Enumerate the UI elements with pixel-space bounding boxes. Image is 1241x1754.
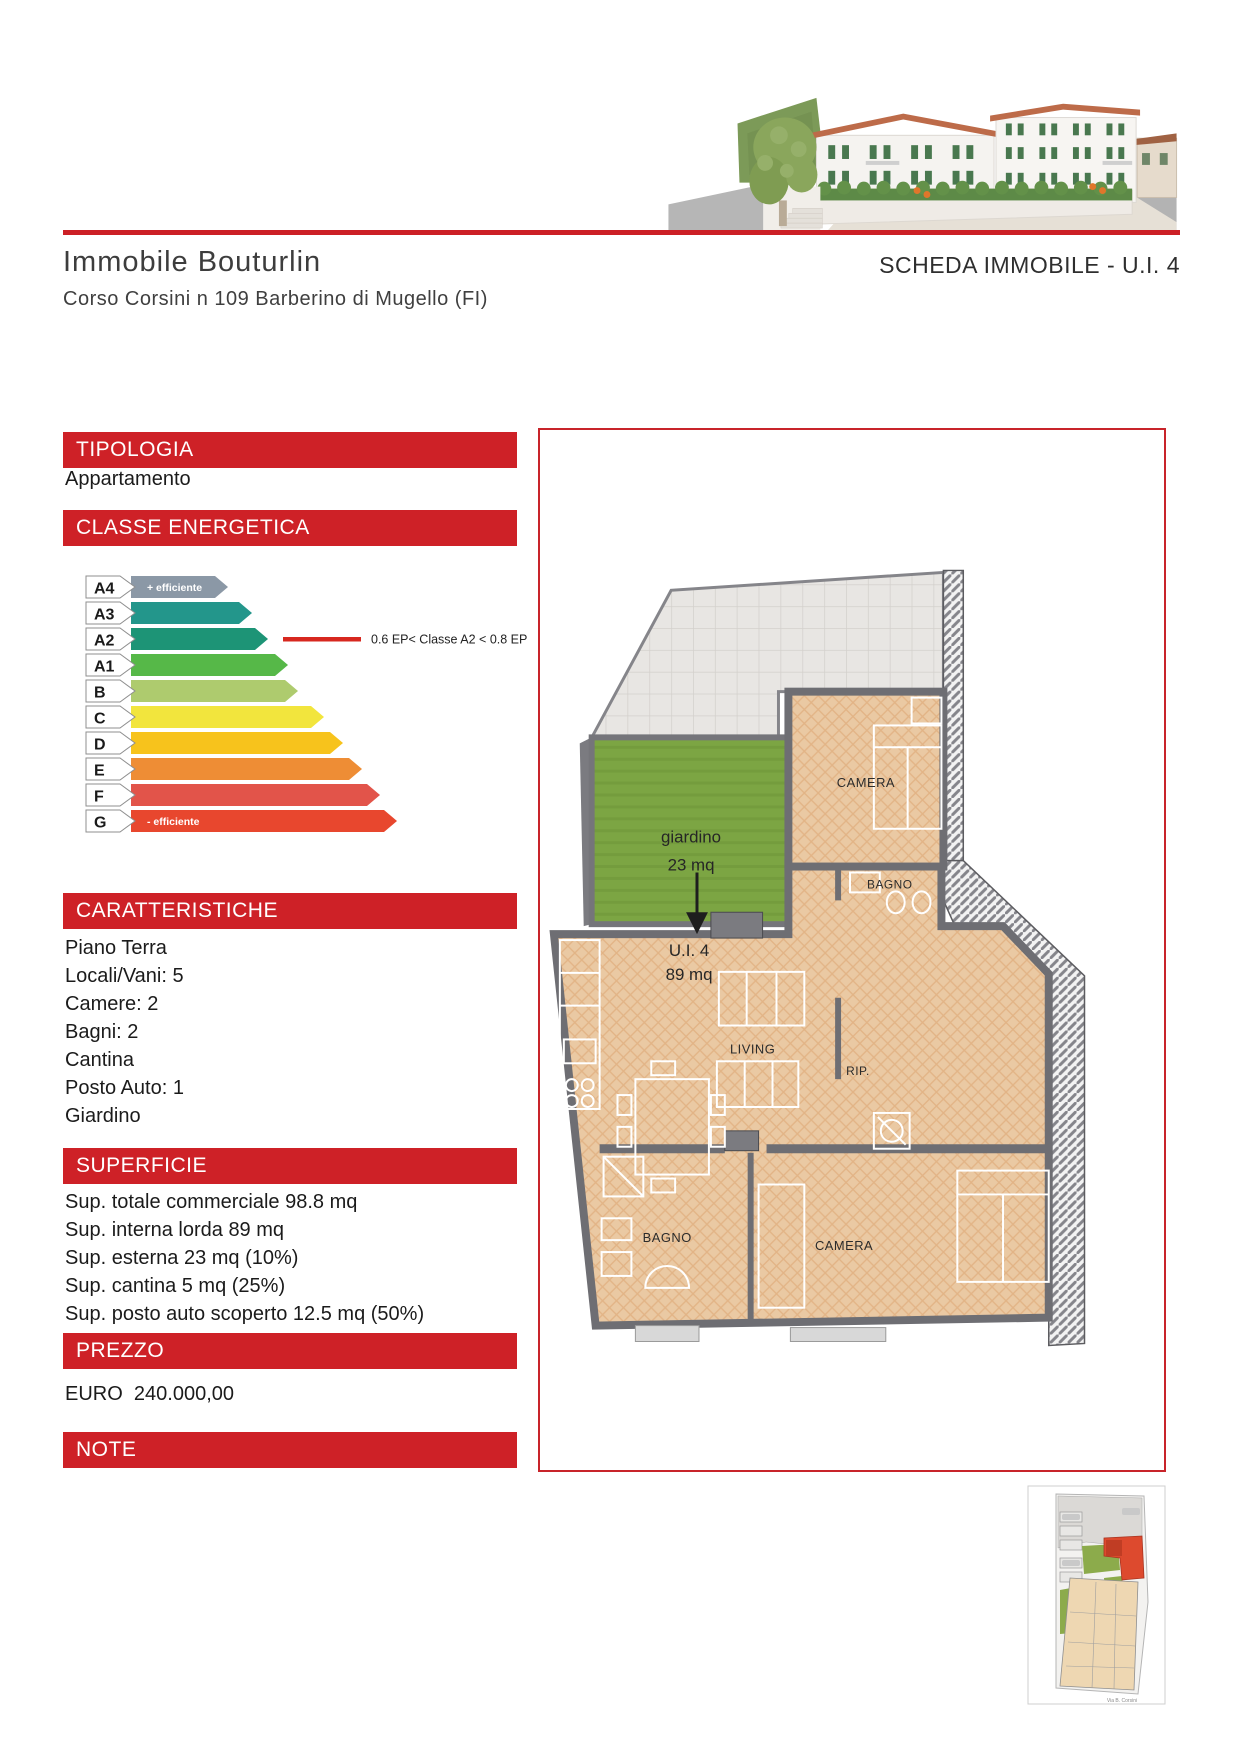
unit-area-label: 89 mq: [666, 965, 713, 984]
energy-arrow-A3: [131, 602, 252, 624]
header-divider-rule: [63, 230, 1180, 235]
section-header-caratteristiche: CARATTERISTICHE: [63, 893, 517, 929]
room-label-camera-top: CAMERA: [837, 775, 895, 790]
energy-tag: - efficiente: [147, 816, 200, 828]
site-key-plan: Via B. Corsini: [1026, 1482, 1167, 1708]
exterior-step: [635, 1326, 699, 1342]
section-header-classe-energetica: CLASSE ENERGETICA: [63, 510, 517, 546]
list-item: Locali/Vani: 5: [65, 962, 184, 990]
list-item: Bagni: 2: [65, 1018, 184, 1046]
tipologia-value: Appartamento: [65, 468, 191, 491]
room-label-bagno-top: BAGNO: [867, 877, 913, 891]
section-header-tipologia: TIPOLOGIA: [63, 432, 517, 468]
unit-label: U.I. 4: [669, 941, 709, 960]
garden-area-label: 23 mq: [668, 856, 715, 875]
floorplan-panel: giardino 23 mq U.I. 4 89 mq CAMERA BAGNO…: [538, 428, 1166, 1472]
energy-letter-E: E: [94, 763, 105, 780]
section-header-prezzo: PREZZO: [63, 1333, 517, 1369]
energy-letter-D: D: [94, 737, 106, 754]
property-photo-render: [665, 84, 1180, 232]
superficie-list: Sup. totale commerciale 98.8 mqSup. inte…: [65, 1188, 424, 1328]
energy-letter-C: C: [94, 711, 106, 728]
list-item: Posto Auto: 1: [65, 1074, 184, 1102]
room-label-rip: RIP.: [846, 1064, 870, 1078]
list-item: Cantina: [65, 1046, 184, 1074]
property-address: Corso Corsini n 109 Barberino di Mugello…: [63, 288, 488, 311]
room-label-bagno-bottom: BAGNO: [643, 1230, 692, 1245]
list-item: Piano Terra: [65, 934, 184, 962]
energy-arrow-A2: [131, 628, 268, 650]
garden-label: giardino: [661, 828, 721, 847]
street-label: Via B. Corsini: [1107, 1698, 1137, 1704]
site-key-plan-drawing: Via B. Corsini: [1026, 1482, 1167, 1708]
energy-letter-A2: A2: [94, 633, 115, 650]
energy-annotation-line: [283, 637, 361, 642]
energy-tag: + efficiente: [147, 582, 202, 594]
page-title: Immobile Bouturlin: [63, 246, 321, 279]
section-header-superficie: SUPERFICIE: [63, 1148, 517, 1184]
floorplan-drawing: giardino 23 mq U.I. 4 89 mq CAMERA BAGNO…: [540, 430, 1164, 1470]
energy-arrow-F: [131, 784, 380, 806]
room-label-camera-bottom: CAMERA: [815, 1238, 873, 1253]
energy-annotation-text: 0.6 EP< Classe A2 < 0.8 EP: [371, 633, 527, 647]
prezzo-value: EURO 240.000,00: [65, 1383, 234, 1406]
energy-letter-G: G: [94, 815, 106, 832]
sheet-title: SCHEDA IMMOBILE - U.I. 4: [879, 252, 1180, 279]
list-item: Sup. interna lorda 89 mq: [65, 1216, 424, 1244]
energy-class-chart: A4+ efficienteA3A20.6 EP< Classe A2 < 0.…: [85, 574, 545, 836]
section-header-note: NOTE: [63, 1432, 517, 1468]
energy-letter-F: F: [94, 789, 104, 806]
property-photo: [665, 84, 1180, 232]
energy-letter-A3: A3: [94, 607, 115, 624]
list-item: Sup. cantina 5 mq (25%): [65, 1272, 424, 1300]
list-item: Sup. esterna 23 mq (10%): [65, 1244, 424, 1272]
exterior-step: [790, 1328, 885, 1342]
room-label-living: LIVING: [730, 1041, 775, 1056]
energy-arrow-C: [131, 706, 324, 728]
energy-arrow-D: [131, 732, 343, 754]
energy-letter-A4: A4: [94, 581, 115, 598]
wall-stub: [725, 1131, 759, 1151]
list-item: Sup. totale commerciale 98.8 mq: [65, 1188, 424, 1216]
energy-arrow-A1: [131, 654, 288, 676]
energy-arrow-B: [131, 680, 298, 702]
list-item: Giardino: [65, 1102, 184, 1130]
energy-letter-A1: A1: [94, 659, 115, 676]
energy-arrow-E: [131, 758, 362, 780]
list-item: Camere: 2: [65, 990, 184, 1018]
energy-letter-B: B: [94, 685, 106, 702]
property-sheet-page: Immobile Bouturlin SCHEDA IMMOBILE - U.I…: [0, 0, 1241, 1754]
list-item: Sup. posto auto scoperto 12.5 mq (50%): [65, 1300, 424, 1328]
entrance-vestibule: [711, 912, 763, 938]
caratteristiche-list: Piano TerraLocali/Vani: 5Camere: 2Bagni:…: [65, 934, 184, 1130]
